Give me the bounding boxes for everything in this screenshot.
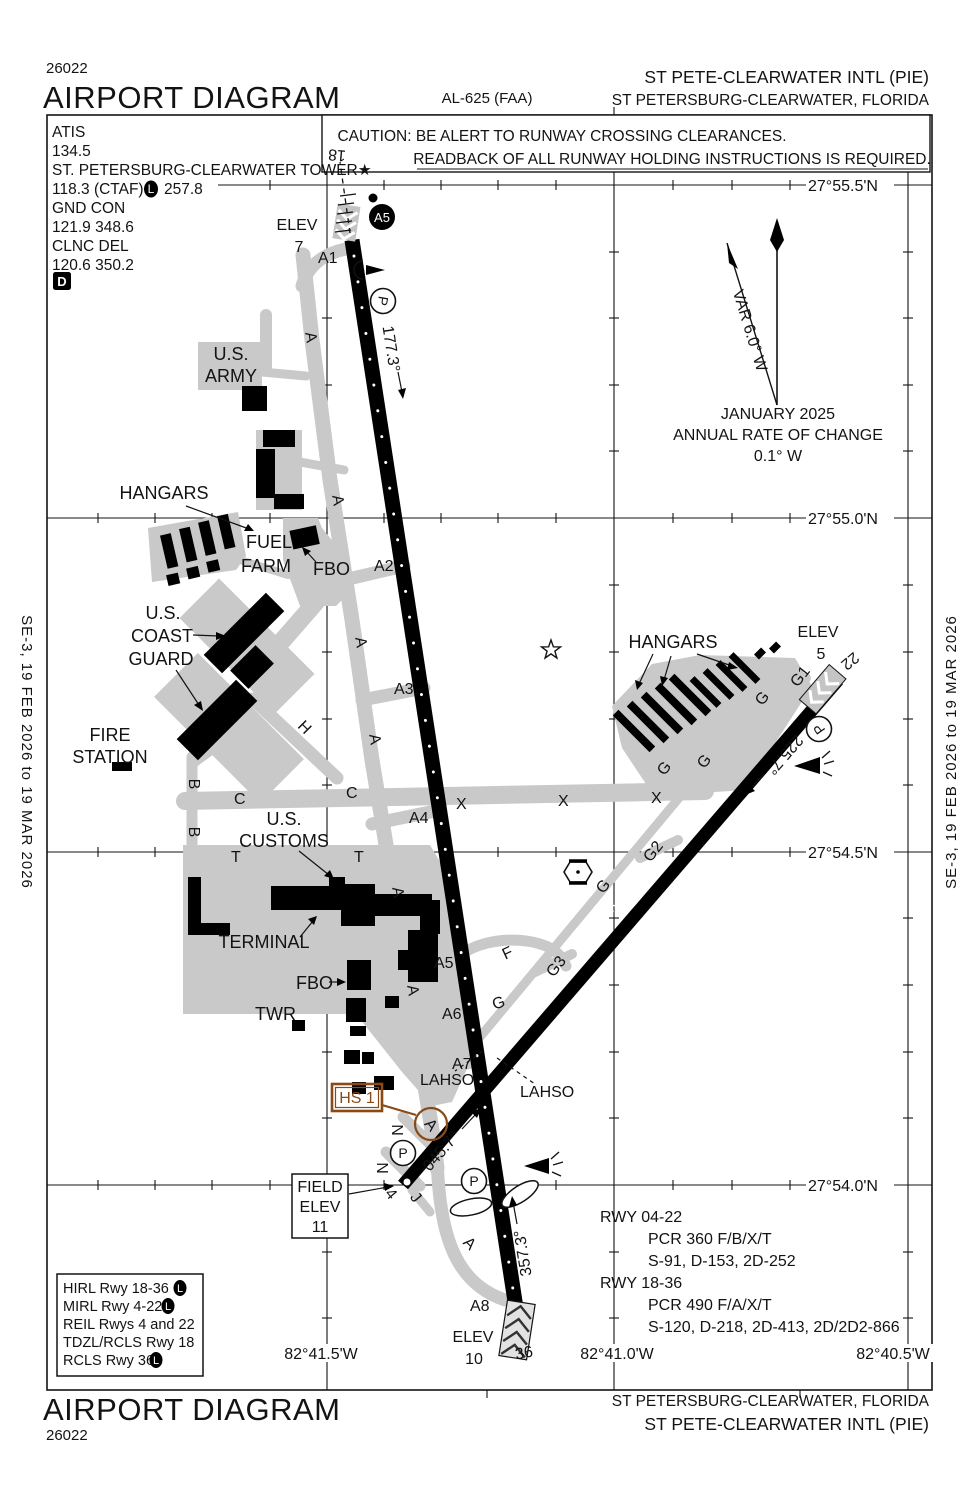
tower-name: ST. PETERSBURG-CLEARWATER TOWER★ xyxy=(52,162,372,179)
taxiway-label: A xyxy=(459,1234,479,1254)
al-number: AL-625 (FAA) xyxy=(442,90,533,107)
taxiway-label: C xyxy=(346,785,358,802)
terminal-wing xyxy=(271,886,343,910)
footer: AIRPORT DIAGRAM 26022 ST PETERSBURG-CLEA… xyxy=(43,1392,930,1444)
lighting-line: RCLS Rwy 36 xyxy=(63,1353,154,1369)
compass-pad-icon xyxy=(449,1195,493,1219)
taxiway-label: A2 xyxy=(374,558,394,575)
hs1-label: HS 1 xyxy=(339,1090,375,1107)
us-army-label: U.S. xyxy=(213,344,248,364)
fbo-south-label: FBO xyxy=(296,973,333,993)
caution-line1: CAUTION: BE ALERT TO RUNWAY CROSSING CLE… xyxy=(337,128,786,145)
arrowhead xyxy=(398,388,406,399)
taxiway-label: T xyxy=(231,849,241,866)
parking-p-icon: P xyxy=(391,1141,416,1166)
taxiway-label: A7 xyxy=(452,1056,472,1073)
customs-label: CUSTOMS xyxy=(239,831,329,851)
building xyxy=(385,996,399,1008)
lon-label: 82°41.0'W xyxy=(580,1346,654,1363)
mid-connector xyxy=(300,462,344,470)
p-glyph: P xyxy=(469,1173,478,1189)
approach-light-dot xyxy=(369,194,378,203)
coast-guard-label: U.S. xyxy=(145,603,180,623)
fuel-farm-label: FARM xyxy=(241,556,291,576)
airport-beacon-icon xyxy=(542,640,561,658)
rwy22-elev-value: 5 xyxy=(817,646,826,663)
tower-label: TWR xyxy=(255,1004,296,1024)
field-elev-value: 11 xyxy=(312,1219,329,1236)
taxiway-label: A6 xyxy=(442,1006,462,1023)
p-glyph: P xyxy=(398,1145,407,1161)
wind-cone-icon xyxy=(794,751,834,776)
rwy22-elev-label: ELEV xyxy=(798,624,839,641)
lighting-line: TDZL/RCLS Rwy 18 xyxy=(63,1335,194,1351)
gnd-freq: 121.9 348.6 xyxy=(52,219,134,236)
page-title: AIRPORT DIAGRAM xyxy=(43,80,340,115)
rwy18-elev-value: 7 xyxy=(295,239,304,256)
runway-number-22: 22 xyxy=(837,648,862,673)
rwy18-elev-label: ELEV xyxy=(277,217,318,234)
us-army-building xyxy=(242,386,267,411)
footer-city: ST PETERSBURG-CLEARWATER, FLORIDA xyxy=(612,1393,930,1410)
rwy1836-title: RWY 18-36 xyxy=(600,1275,682,1292)
fire-station-label: FIRE xyxy=(89,725,130,745)
footer-airport: ST PETE-CLEARWATER INTL (PIE) xyxy=(644,1414,929,1434)
building xyxy=(344,1050,360,1064)
taxiway-label: C xyxy=(234,791,246,808)
tower-freq-uhf: 257.8 xyxy=(164,181,203,198)
hangar-building xyxy=(769,641,781,653)
building xyxy=(350,1026,366,1036)
clnc-label: CLNC DEL xyxy=(52,238,129,255)
rwy36-elev-value: 10 xyxy=(465,1351,483,1368)
annual-rate-label: ANNUAL RATE OF CHANGE xyxy=(673,427,883,444)
hangars-ne-label: HANGARS xyxy=(628,632,717,652)
building xyxy=(346,998,366,1022)
atis-label: ATIS xyxy=(52,124,85,141)
taxiway-label: A xyxy=(351,636,370,650)
taxiway-label: A8 xyxy=(470,1298,490,1315)
taxiway-label: A1 xyxy=(318,250,338,267)
lat-label: 27°54.0'N xyxy=(808,1178,878,1195)
lighting-L-glyph: L xyxy=(165,1301,171,1313)
true-north-arrowhead xyxy=(770,218,784,252)
north-variation-arrows: VAR 6.0° W JANUARY 2025 ANNUAL RATE OF C… xyxy=(673,218,883,465)
fbo-building xyxy=(347,960,371,990)
terminal-label: TERMINAL xyxy=(218,932,309,952)
runway-number-36: 36 xyxy=(514,1344,535,1364)
airport-city: ST PETERSBURG-CLEARWATER, FLORIDA xyxy=(612,92,930,109)
airport-diagram-page: 26022 AIRPORT DIAGRAM AL-625 (FAA) ST PE… xyxy=(0,0,978,1500)
rwy18-heading-arrow xyxy=(398,372,402,392)
taxiway-label: X xyxy=(558,793,569,810)
clnc-freq: 120.6 350.2 xyxy=(52,257,134,274)
header: 26022 AIRPORT DIAGRAM AL-625 (FAA) ST PE… xyxy=(43,60,930,115)
lighting-line: REIL Rwys 4 and 22 xyxy=(63,1317,195,1333)
lighting-box: HIRL Rwy 18-36 L MIRL Rwy 4-22 L REIL Rw… xyxy=(57,1274,203,1376)
hexagon-icon xyxy=(564,861,592,883)
lighting-L-glyph: L xyxy=(148,182,155,196)
taxiway-label: A3 xyxy=(394,681,414,698)
terminal-wing xyxy=(398,950,412,970)
caution-line2: READBACK OF ALL RUNWAY HOLDING INSTRUCTI… xyxy=(413,151,931,168)
gnd-label: GND CON xyxy=(52,200,125,217)
fire-station-label: STATION xyxy=(72,747,147,767)
taxiway-label: X xyxy=(456,796,467,813)
right-edition: SE-3, 19 FEB 2026 to 19 MAR 2026 xyxy=(943,615,960,889)
wind-cone-icon xyxy=(524,1152,563,1176)
terminal-wing xyxy=(420,900,440,934)
airport-diagram-chart: 26022 AIRPORT DIAGRAM AL-625 (FAA) ST PE… xyxy=(0,0,978,1500)
taxiway-label: N xyxy=(373,1162,390,1174)
lahso-label: LAHSO xyxy=(520,1084,574,1101)
taxiway-label: A5 xyxy=(434,955,454,972)
lat-label: 27°55.0'N xyxy=(808,511,878,528)
atis-freq: 134.5 xyxy=(52,143,91,160)
taxiway-label: F xyxy=(500,944,516,964)
rwy1836-strength: S-120, D-218, 2D-413, 2D/2D2-866 xyxy=(648,1319,900,1336)
taxiway-label: X xyxy=(651,790,662,807)
taxiway-label: B xyxy=(185,779,202,790)
parking-p-icon: P xyxy=(807,717,832,742)
taxiway-label: N xyxy=(388,1124,405,1136)
lon-label: 82°40.5'W xyxy=(856,1346,930,1363)
coast-guard-label: COAST xyxy=(131,626,193,646)
us-army-label: ARMY xyxy=(205,366,257,386)
hangars-west-label: HANGARS xyxy=(119,483,208,503)
lat-label: 27°55.5'N xyxy=(808,178,878,195)
airport-name: ST PETE-CLEARWATER INTL (PIE) xyxy=(644,67,929,87)
taxiway-label: A4 xyxy=(409,810,429,827)
rwy1836-pcr: PCR 490 F/A/X/T xyxy=(648,1297,772,1314)
field-elev-point xyxy=(404,1179,411,1186)
runway-info-block: RWY 04-22 PCR 360 F/B/X/T S-91, D-153, 2… xyxy=(600,1209,900,1336)
footer-title: AIRPORT DIAGRAM xyxy=(43,1392,340,1427)
lighting-L-glyph: L xyxy=(153,1355,159,1367)
rwy0422-strength: S-91, D-153, 2D-252 xyxy=(648,1253,796,1270)
taxiway-label: A xyxy=(328,494,347,508)
d-atis-glyph: D xyxy=(57,274,66,289)
rwy0422-title: RWY 04-22 xyxy=(600,1209,682,1226)
lahso-label: LAHSO xyxy=(420,1072,474,1089)
tower-freq: 118.3 (CTAF) xyxy=(52,181,144,198)
taxiway-label: B xyxy=(185,827,202,838)
lighting-line: HIRL Rwy 18-36 xyxy=(63,1281,169,1297)
parking-p-icon: P xyxy=(371,289,396,314)
building xyxy=(263,430,295,447)
fbo-north-label: FBO xyxy=(313,559,350,579)
caution-box: CAUTION: BE ALERT TO RUNWAY CROSSING CLE… xyxy=(322,115,931,172)
rwy36-elev-label: ELEV xyxy=(453,1329,494,1346)
lighting-line: MIRL Rwy 4-22 xyxy=(63,1299,162,1315)
taxiway-label: A xyxy=(365,733,384,747)
variation-label: VAR 6.0° W xyxy=(729,288,770,374)
customs-label: U.S. xyxy=(266,809,301,829)
left-edition: SE-3, 19 FEB 2026 to 19 MAR 2026 xyxy=(18,615,35,889)
lon-label: 82°41.5'W xyxy=(284,1346,358,1363)
malsr-a5-label: A5 xyxy=(374,210,390,225)
building xyxy=(362,1052,374,1064)
chart-number: 26022 xyxy=(46,60,88,77)
parking-p-icon: P xyxy=(462,1169,487,1194)
building xyxy=(256,449,275,498)
field-elev-line2: ELEV xyxy=(300,1199,341,1216)
lighting-L-glyph: L xyxy=(177,1283,183,1295)
field-elev-box: FIELD ELEV 11 xyxy=(292,1174,394,1238)
leader-line xyxy=(349,1187,388,1194)
coast-guard-label: GUARD xyxy=(128,649,193,669)
runway-number-18: 18 xyxy=(327,145,346,163)
fuel-farm-label: FUEL xyxy=(246,532,292,552)
taxiway-label: T xyxy=(354,849,364,866)
lat-label: 27°54.5'N xyxy=(808,845,878,862)
field-elev-line1: FIELD xyxy=(297,1179,342,1196)
variation-date: JANUARY 2025 xyxy=(721,406,835,423)
annual-rate-value: 0.1° W xyxy=(754,448,803,465)
chart-border xyxy=(47,115,932,1390)
rwy18-heading: 177.3° xyxy=(379,325,403,373)
building xyxy=(274,494,304,509)
rwy0422-pcr: PCR 360 F/B/X/T xyxy=(648,1231,772,1248)
footer-chart-number: 26022 xyxy=(46,1427,88,1444)
